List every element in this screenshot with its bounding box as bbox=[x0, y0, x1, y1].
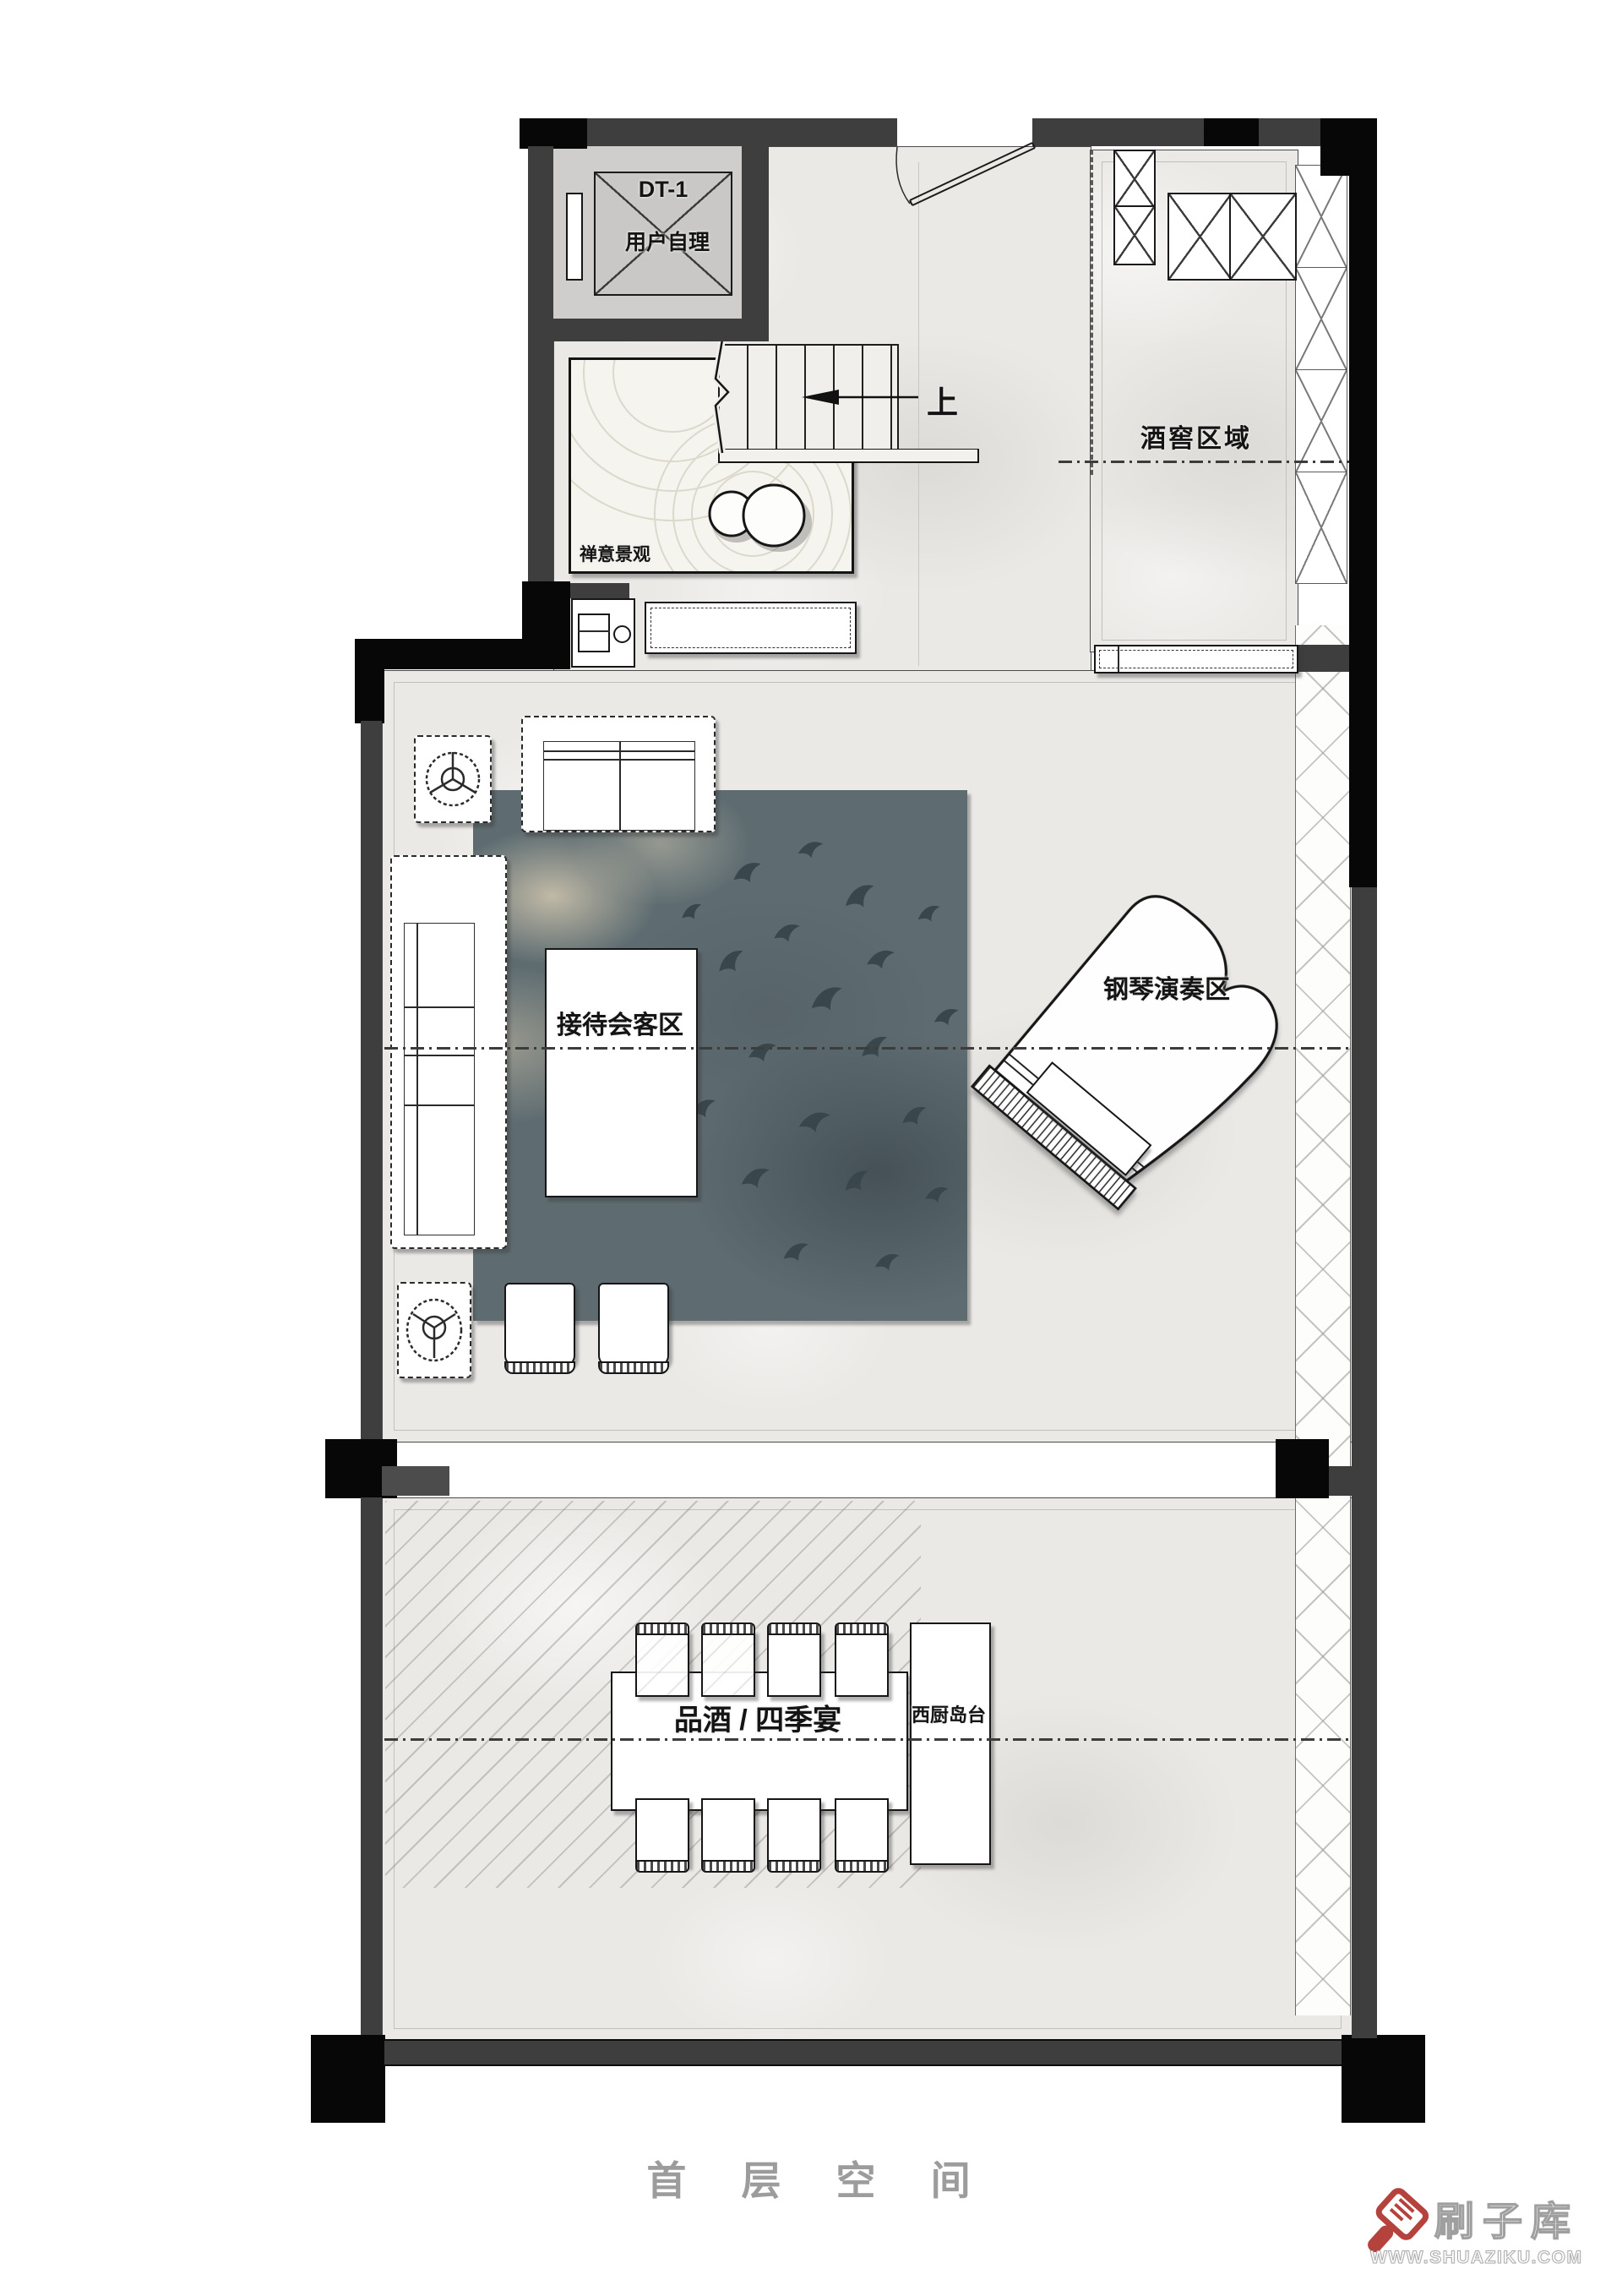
zen-garden-label: 禅意景观 bbox=[580, 541, 650, 566]
corner-column-bottom-left bbox=[311, 2035, 385, 2123]
chair-hatch bbox=[703, 1631, 754, 1695]
sofa-back-line bbox=[416, 924, 418, 1235]
dining-axis-line bbox=[384, 1738, 1349, 1741]
left-wall-mid bbox=[361, 721, 382, 1441]
sofa-left-seat bbox=[404, 923, 475, 1235]
corner-column-top-right bbox=[1320, 118, 1377, 176]
left-wall-lower bbox=[361, 1497, 382, 2038]
coffee-table bbox=[545, 948, 698, 1197]
mid-stub-left bbox=[382, 1466, 449, 1496]
living-axis-line bbox=[384, 1047, 1349, 1050]
wine-counter bbox=[1094, 645, 1298, 674]
entry-door-swing bbox=[887, 117, 1048, 218]
wine-cabinet-cell bbox=[1168, 193, 1233, 281]
top-wall-column bbox=[1204, 118, 1259, 146]
sofa-seat-divider bbox=[405, 1104, 474, 1106]
wine-cellar-label: 酒窖区域 bbox=[1140, 417, 1252, 455]
watermark-url: WWW.SHUAZIKU.COM bbox=[1370, 2248, 1582, 2268]
left-wall-upper bbox=[528, 146, 553, 586]
dining-chair bbox=[835, 1798, 889, 1866]
wine-rack-cell bbox=[1295, 472, 1347, 584]
piano-area-label: 钢琴演奏区 bbox=[1103, 968, 1230, 1006]
wine-axis-line bbox=[1059, 461, 1349, 463]
chair-backrest bbox=[635, 1860, 689, 1873]
elevator-door-panel bbox=[566, 193, 583, 281]
stair-break-line bbox=[708, 338, 737, 456]
zen-stone-large bbox=[743, 485, 804, 546]
elevator-bottom-wall bbox=[528, 319, 769, 341]
appliance-knob bbox=[613, 625, 631, 643]
wine-counter-stub-wall bbox=[1297, 645, 1349, 672]
stair-direction-arrow bbox=[790, 380, 925, 414]
reception-label: 接待会客区 bbox=[547, 1004, 693, 1041]
console-inner-dash bbox=[650, 608, 851, 648]
top-wall bbox=[1032, 118, 1204, 146]
fan-symbol-icon bbox=[416, 737, 490, 821]
chair-backrest bbox=[767, 1622, 821, 1635]
dining-chair bbox=[767, 1798, 821, 1866]
corner-column-bottom-right bbox=[1342, 2035, 1425, 2123]
chair-backrest bbox=[767, 1860, 821, 1873]
console-back-wall bbox=[569, 583, 629, 598]
bottom-wall bbox=[384, 2039, 1342, 2066]
sofa-seat-divider bbox=[405, 1006, 474, 1008]
living-step-column bbox=[355, 639, 384, 723]
right-wall-lower bbox=[1352, 887, 1377, 2038]
wine-rack-cell bbox=[1295, 267, 1347, 371]
dining-chair bbox=[635, 1629, 689, 1697]
top-wall bbox=[587, 118, 897, 146]
chair-backrest bbox=[598, 1361, 669, 1374]
sofa-seat-divider bbox=[619, 742, 621, 830]
sofa-left bbox=[390, 855, 507, 1249]
kitchen-island-label: 西厨岛台 bbox=[910, 1700, 988, 1727]
dining-chair bbox=[835, 1629, 889, 1697]
sofa-seat-divider bbox=[405, 1055, 474, 1056]
wine-partition-dashed bbox=[1091, 150, 1093, 475]
dining-chair bbox=[701, 1629, 755, 1697]
chair-backrest bbox=[835, 1860, 889, 1873]
sofa-top-seat bbox=[543, 741, 695, 831]
mid-stub-right bbox=[1329, 1466, 1352, 1496]
side-table-top bbox=[414, 735, 492, 823]
mid-column-right bbox=[1276, 1439, 1329, 1498]
right-wall-upper bbox=[1349, 173, 1377, 887]
top-wall bbox=[1259, 118, 1322, 146]
wine-cabinet-cell bbox=[1229, 193, 1297, 281]
appliance-drawer bbox=[578, 614, 610, 652]
dining-chair bbox=[701, 1798, 755, 1866]
fan-symbol-icon bbox=[399, 1284, 470, 1377]
chair-hatch bbox=[637, 1631, 688, 1695]
lounge-chair bbox=[504, 1283, 575, 1367]
dining-chair bbox=[767, 1629, 821, 1697]
wine-cabinet-strip-cell bbox=[1113, 205, 1156, 265]
watermark: 刷子库 WWW.SHUAZIKU.COM bbox=[1345, 2180, 1615, 2290]
dining-label: 品酒 / 四季宴 bbox=[611, 1697, 905, 1738]
dining-chair bbox=[635, 1798, 689, 1866]
wine-counter-divider bbox=[1118, 646, 1119, 672]
lounge-chair bbox=[598, 1283, 669, 1367]
side-table-bottom bbox=[397, 1282, 471, 1378]
stair-stringer bbox=[718, 449, 979, 463]
page-title: 首 层 空 间 bbox=[355, 2148, 1284, 2206]
elevator-code-label: DT-1 bbox=[621, 177, 705, 203]
wine-cabinet-strip-cell bbox=[1113, 150, 1156, 209]
floor-plan-sheet: DT-1 用户自理 禅意景观 上 bbox=[0, 0, 1622, 2296]
elevator-cab: DT-1 用户自理 bbox=[594, 172, 732, 296]
elevator-note-label: 用户自理 bbox=[621, 226, 714, 256]
chair-backrest bbox=[701, 1860, 755, 1873]
hall-appliance bbox=[571, 598, 635, 668]
glazing-lattice-strip bbox=[1295, 625, 1351, 2015]
watermark-brand: 刷子库 bbox=[1434, 2189, 1579, 2247]
elevator-side-wall bbox=[742, 146, 769, 341]
corner-column-top-left bbox=[520, 118, 587, 149]
wine-counter-dash bbox=[1099, 650, 1293, 668]
sofa-top bbox=[521, 716, 716, 832]
wine-rack-cell bbox=[1295, 165, 1347, 269]
chair-backrest bbox=[835, 1622, 889, 1635]
chair-backrest bbox=[504, 1361, 575, 1374]
hall-console bbox=[645, 602, 857, 654]
wine-rack-cell bbox=[1295, 369, 1347, 473]
stair-up-label: 上 bbox=[927, 377, 958, 423]
hall-floor-joint-line bbox=[918, 162, 919, 666]
appliance-drawer-line bbox=[578, 630, 610, 632]
kitchen-island bbox=[910, 1622, 991, 1865]
